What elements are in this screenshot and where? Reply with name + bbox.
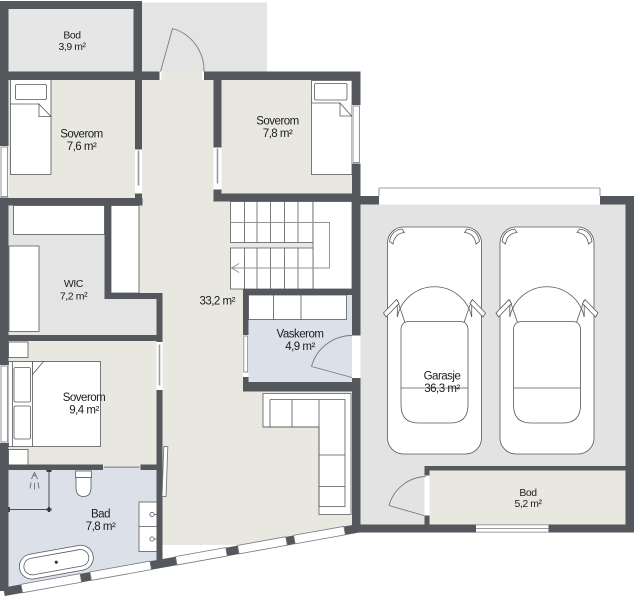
svg-text:Soverom: Soverom (256, 115, 299, 127)
svg-text:Soverom: Soverom (60, 128, 103, 140)
svg-text:Garasje: Garasje (424, 370, 461, 382)
svg-text:Bod: Bod (519, 488, 537, 499)
svg-text:3,9 m²: 3,9 m² (58, 42, 86, 53)
svg-text:Bad: Bad (91, 509, 110, 521)
svg-text:7,8 m²: 7,8 m² (86, 521, 116, 533)
svg-text:7,6 m²: 7,6 m² (67, 141, 97, 153)
svg-text:7,2 m²: 7,2 m² (60, 290, 88, 302)
svg-text:7,8 m²: 7,8 m² (263, 128, 293, 140)
svg-text:36,3 m²: 36,3 m² (424, 383, 460, 395)
svg-text:Vaskerom: Vaskerom (277, 328, 324, 340)
svg-text:Soverom: Soverom (63, 392, 106, 404)
svg-text:Bod: Bod (63, 31, 81, 42)
svg-text:4,9 m²: 4,9 m² (285, 341, 315, 353)
svg-text:9,4 m²: 9,4 m² (69, 404, 99, 416)
svg-text:WIC: WIC (64, 278, 84, 290)
svg-text:5,2 m²: 5,2 m² (514, 499, 542, 510)
svg-text:33,2 m²: 33,2 m² (199, 296, 235, 308)
